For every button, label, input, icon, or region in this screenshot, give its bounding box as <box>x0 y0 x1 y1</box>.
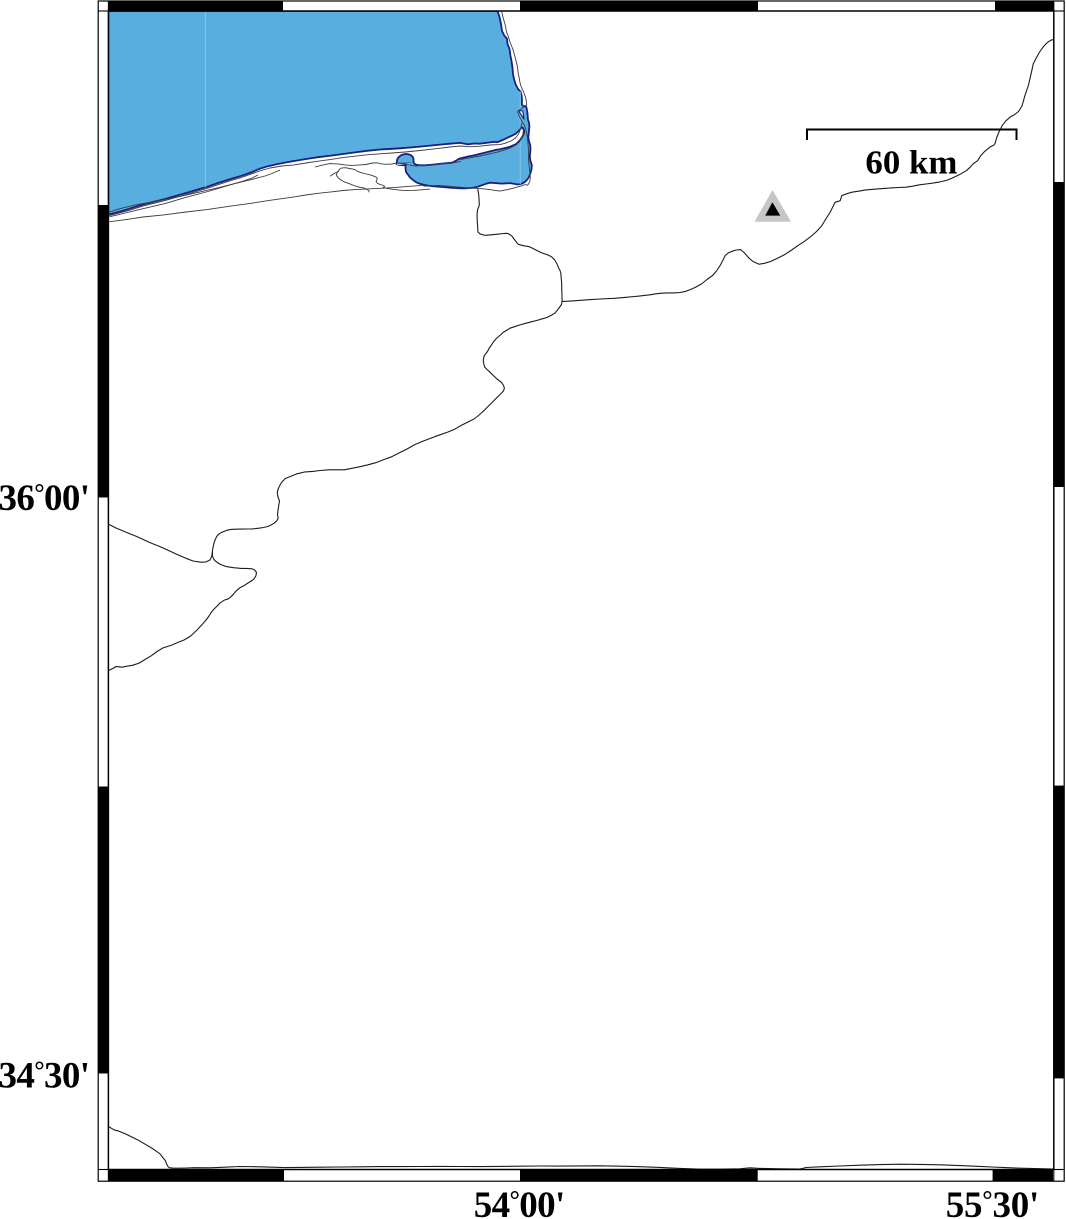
svg-text:60 km: 60 km <box>865 145 957 182</box>
svg-text:36°00': 36°00' <box>0 478 90 519</box>
svg-text:34°30': 34°30' <box>0 1056 90 1097</box>
svg-text:54°00': 54°00' <box>474 1185 566 1219</box>
svg-text:55°30': 55°30' <box>946 1185 1040 1219</box>
